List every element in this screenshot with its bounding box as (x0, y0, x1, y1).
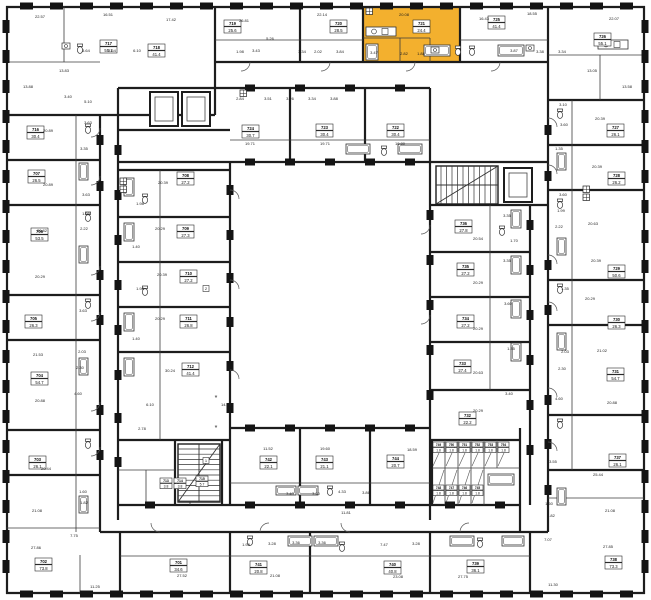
room-area-label: 3.26 (286, 96, 295, 101)
room-area-label: 3.63 (82, 192, 91, 197)
room-area-label: 19.71 (245, 141, 256, 146)
svg-text:20.8: 20.8 (254, 569, 263, 574)
svg-text:54.7: 54.7 (35, 380, 44, 385)
room-area-label: 20.39 (592, 164, 603, 169)
room-area-label: 6.10 (146, 402, 155, 407)
room-area-label: 1.60 (545, 501, 554, 506)
svg-text:1.8: 1.8 (449, 448, 454, 452)
svg-text:750: 750 (449, 443, 455, 447)
room-area-label: 3.84 (336, 49, 345, 54)
room-area-label: 4.60 (74, 391, 83, 396)
room-area-label: 3.86 (362, 490, 371, 495)
svg-text:20.7: 20.7 (391, 463, 400, 468)
svg-text:27.4: 27.4 (458, 368, 467, 373)
room-area-label: 20.63 (588, 221, 599, 226)
room-area-label: 7.75 (70, 533, 79, 538)
svg-text:746: 746 (462, 486, 468, 490)
svg-text:734: 734 (462, 316, 470, 321)
room-area-label: 23.08 (393, 574, 404, 579)
svg-text:53.5: 53.5 (35, 236, 44, 241)
unit-label-730[interactable]: 73026.3 (608, 316, 625, 329)
svg-text:704: 704 (36, 373, 44, 378)
room-area-label: 2.02 (314, 49, 323, 54)
storage-unit-label-748[interactable]: 7481.8 (433, 485, 444, 496)
svg-text:3.8: 3.8 (164, 484, 169, 488)
room-area-label: 3.60 (504, 301, 513, 306)
room-area-label: 3.63 (84, 120, 93, 125)
svg-text:754: 754 (501, 443, 507, 447)
svg-text:41.4: 41.4 (492, 24, 501, 29)
unit-label-723[interactable]: 72330.4 (316, 124, 333, 137)
svg-text:26.1: 26.1 (611, 132, 620, 137)
room-area-label: 3.35 (80, 146, 89, 151)
room-area-label: 20.29 (585, 296, 596, 301)
svg-text:718: 718 (153, 45, 161, 50)
svg-text:1.8: 1.8 (475, 491, 480, 495)
svg-text:725: 725 (493, 17, 501, 22)
room-area-label: 6.10 (133, 48, 142, 53)
room-area-label: 5.26 (266, 36, 275, 41)
room-area-label: 2.22 (555, 224, 564, 229)
svg-text:708: 708 (182, 173, 190, 178)
room-area-label: 20.89 (43, 182, 54, 187)
unit-label-716[interactable]: 71630.4 (27, 126, 44, 139)
room-area-label: 20.39 (158, 180, 169, 185)
unit-label-715[interactable]: 7155.7 (196, 476, 208, 487)
unit-label-718[interactable]: 71841.4 (148, 44, 165, 57)
room-area-label: 17.42 (166, 17, 177, 22)
svg-text:27.3: 27.3 (181, 233, 190, 238)
svg-text:27.2: 27.2 (461, 271, 470, 276)
unit-label-712[interactable]: 71241.4 (182, 363, 199, 376)
room-area-label: 26.81 (239, 18, 250, 23)
room-area-label: 20.29 (155, 226, 166, 231)
svg-text:702: 702 (40, 559, 48, 564)
room-area-label: 2.03 (561, 349, 570, 354)
unit-label-733[interactable]: 73327.4 (454, 360, 471, 373)
room-area-label: 16.51 (103, 12, 114, 17)
svg-text:741: 741 (255, 562, 263, 567)
room-area-label: 1.40 (132, 336, 141, 341)
unit-label-737[interactable]: 73726.1 (609, 454, 626, 467)
svg-text:738: 738 (610, 557, 618, 562)
svg-text:3.8: 3.8 (178, 484, 183, 488)
unit-label-714[interactable]: 7143.8 (174, 478, 186, 489)
svg-text:1.8: 1.8 (501, 448, 506, 452)
svg-text:739: 739 (472, 561, 480, 566)
svg-text:1.8: 1.8 (449, 491, 454, 495)
room-area-label: 3.43 (252, 48, 261, 53)
storage-unit-label-745[interactable]: 7451.8 (472, 485, 483, 496)
svg-text:712: 712 (187, 364, 195, 369)
room-area-label: 20.29 (473, 408, 484, 413)
svg-text:744: 744 (392, 456, 400, 461)
room-area-label: 3.34 (298, 49, 307, 54)
room-area-label: 3.34 (558, 49, 567, 54)
unit-label-704[interactable]: 70454.7 (31, 372, 48, 385)
room-area-label: 27.86 (31, 545, 42, 550)
unit-label-702[interactable]: 70273.8 (35, 558, 52, 571)
svg-text:752: 752 (475, 443, 481, 447)
unit-label-727[interactable]: 72726.1 (607, 124, 624, 137)
unit-label-732[interactable]: 73222.2 (459, 412, 476, 425)
unit-label-708[interactable]: 70827.2 (177, 172, 194, 185)
svg-text:709: 709 (182, 226, 190, 231)
room-area-label: 2.03 (78, 349, 87, 354)
room-area-label: 1.82 (547, 513, 556, 518)
svg-text:26.5: 26.5 (32, 178, 41, 183)
svg-text:740: 740 (389, 562, 397, 567)
room-area-label: 3.38 (536, 49, 545, 54)
svg-text:735: 735 (462, 264, 470, 269)
svg-text:720: 720 (335, 21, 343, 26)
svg-text:748: 748 (436, 486, 442, 490)
room-area-label: 2.82 (400, 51, 409, 56)
unit-label-728[interactable]: 72826.2 (608, 172, 625, 185)
svg-text:28.5: 28.5 (334, 28, 343, 33)
room-area-label: 1.98 (242, 542, 251, 547)
svg-text:30.4: 30.4 (31, 134, 40, 139)
svg-text:36.1: 36.1 (471, 568, 480, 573)
room-area-label: 1.98 (236, 49, 245, 54)
storage-unit-label-747[interactable]: 7471.8 (446, 485, 457, 496)
room-area-label: 4.33 (338, 489, 347, 494)
svg-text:22.1: 22.1 (264, 464, 273, 469)
svg-text:724: 724 (247, 126, 255, 131)
svg-text:722: 722 (392, 125, 400, 130)
svg-text:27.8: 27.8 (459, 228, 468, 233)
svg-text:703: 703 (34, 457, 42, 462)
svg-text:743: 743 (321, 457, 329, 462)
room-area-label: 2.22 (80, 226, 89, 231)
room-area-label: 1.98 (136, 201, 145, 206)
room-area-label: 20.82 (37, 228, 48, 233)
room-area-label: 3.35 (503, 213, 512, 218)
room-area-label: 7.07 (544, 537, 553, 542)
unit-label-729[interactable]: 72950.6 (608, 265, 625, 278)
svg-text:707: 707 (33, 171, 41, 176)
room-area-label: 3.10 (559, 102, 568, 107)
svg-text:25.6: 25.6 (228, 28, 237, 33)
room-area-label: 4.60 (555, 396, 564, 401)
room-area-label: 1.35 (555, 146, 564, 151)
svg-text:26.3: 26.3 (29, 323, 38, 328)
room-area-label: 11.81 (341, 510, 351, 515)
room-area-label: 2.84 (236, 96, 245, 101)
unit-label-738[interactable]: 73873.3 (605, 556, 622, 569)
room-area-label: 1.40 (132, 244, 141, 249)
floor-plan: 21**71755.171841.471925.672028.572124.47… (0, 0, 651, 600)
room-area-label: 3.64 (108, 48, 117, 53)
room-area-label: 22.14 (317, 12, 328, 17)
svg-text:41.4: 41.4 (152, 52, 161, 57)
svg-text:73.3: 73.3 (609, 564, 618, 569)
room-area-label: 3.40 (64, 94, 73, 99)
svg-text:710: 710 (185, 271, 193, 276)
room-area-label: 1.88 (417, 51, 426, 56)
room-area-label: 13.83 (59, 68, 70, 73)
room-area-label: 3.47 (370, 50, 379, 55)
room-area-label: 3.40 (312, 491, 321, 496)
storage-unit-label-749[interactable]: 7491.8 (433, 442, 444, 453)
floor-plan-container: 21**71755.171841.471925.672028.572124.47… (0, 0, 651, 600)
svg-text:713: 713 (163, 479, 169, 483)
svg-text:737: 737 (614, 455, 622, 460)
room-area-label: 3.40 (286, 491, 295, 496)
svg-text:50.6: 50.6 (612, 273, 621, 278)
storage-unit-label-751[interactable]: 7511.8 (459, 442, 470, 453)
room-area-label: 19.71 (320, 141, 331, 146)
svg-text:24.4: 24.4 (417, 28, 426, 33)
unit-label-735[interactable]: 73527.2 (457, 263, 474, 276)
svg-text:41.4: 41.4 (186, 371, 195, 376)
room-area-label: 21.53 (33, 352, 44, 357)
svg-text:1.8: 1.8 (462, 491, 467, 495)
svg-text:26.2: 26.2 (612, 180, 621, 185)
room-area-label: 19.60 (320, 446, 331, 451)
svg-text:711: 711 (185, 316, 192, 321)
svg-text:719: 719 (229, 21, 237, 26)
room-area-label: 20.08 (399, 12, 410, 17)
room-area-label: 3.87 (510, 48, 519, 53)
room-area-label: 20.29 (35, 274, 46, 279)
unit-label-725[interactable]: 72541.4 (488, 16, 505, 29)
storage-unit-label-750[interactable]: 7501.8 (446, 442, 457, 453)
svg-text:1.8: 1.8 (462, 448, 467, 452)
room-area-label: 1.98 (136, 286, 145, 291)
svg-text:714: 714 (177, 479, 183, 483)
room-area-label: 18.59 (407, 447, 418, 452)
room-area-label: 3.60 (559, 192, 568, 197)
room-area-label: 5.10 (84, 99, 93, 104)
unit-label-705[interactable]: 70526.3 (25, 315, 42, 328)
room-area-label: 20.63 (473, 370, 484, 375)
room-area-label: 20.89 (43, 128, 54, 133)
unit-label-721[interactable]: 72124.4 (413, 20, 430, 33)
unit-label-720[interactable]: 72028.5 (330, 20, 347, 33)
room-area-label: 20.39 (591, 258, 602, 263)
room-area-label: 22.07 (609, 16, 620, 21)
svg-text:736: 736 (460, 221, 468, 226)
room-area-label: 3.64 (82, 48, 91, 53)
room-area-label: 20.29 (155, 316, 166, 321)
room-area-label: 7.47 (380, 542, 389, 547)
room-area-label: 20.29 (473, 280, 484, 285)
svg-text:705: 705 (30, 316, 38, 321)
room-area-label: 20.44 (41, 466, 52, 471)
svg-text:21.1: 21.1 (320, 464, 329, 469)
unit-label-742[interactable]: 74222.1 (260, 456, 277, 469)
svg-text:742: 742 (265, 457, 273, 462)
svg-text:30.7: 30.7 (246, 133, 255, 138)
room-area-label: 1.70 (510, 238, 519, 243)
room-area-label: 27.52 (177, 573, 188, 578)
room-area-label: 3.88 (330, 96, 339, 101)
svg-text:751: 751 (462, 443, 468, 447)
svg-text:27.2: 27.2 (181, 180, 190, 185)
svg-text:55.1: 55.1 (598, 41, 607, 46)
room-area-label: 20.39 (595, 116, 606, 121)
room-area-label: 3.35 (503, 258, 512, 263)
room-area-label: 3.36 (318, 540, 327, 545)
room-area-label: 2.30 (76, 365, 85, 370)
room-area-label: 3.60 (560, 122, 569, 127)
unit-label-736[interactable]: 73627.8 (455, 220, 472, 233)
room-area-label: 22.57 (35, 14, 46, 19)
room-area-label: 20.88 (607, 400, 618, 405)
svg-text:26.8: 26.8 (184, 323, 193, 328)
svg-text:715: 715 (199, 477, 205, 481)
room-area-label: 18.55 (527, 11, 538, 16)
svg-text:727: 727 (612, 125, 620, 130)
unit-label-710[interactable]: 71027.2 (180, 270, 197, 283)
svg-text:54.7: 54.7 (611, 376, 620, 381)
unit-label-740[interactable]: 74040.8 (384, 561, 401, 574)
room-area-label: 1.99 (557, 208, 566, 213)
room-area-label: 20.39 (157, 272, 168, 277)
svg-text:716: 716 (32, 127, 40, 132)
room-area-label: 1.35 (507, 346, 516, 351)
room-area-label: 2.30 (558, 366, 567, 371)
svg-text:34.6: 34.6 (174, 567, 183, 572)
room-area-label: 3.51 (264, 96, 273, 101)
svg-text:1.8: 1.8 (436, 491, 441, 495)
room-area-label: 20.54 (473, 236, 484, 241)
room-area-label: 1.99 (82, 211, 91, 216)
room-area-label: 30.24 (165, 368, 176, 373)
unit-label-726[interactable]: 72655.1 (594, 33, 611, 46)
room-area-label: 11.30 (548, 582, 558, 587)
svg-text:717: 717 (105, 41, 113, 46)
room-area-label: 27.85 (603, 544, 614, 549)
unit-label-724[interactable]: 72430.7 (242, 125, 259, 138)
room-area-label: 1.60 (79, 489, 88, 494)
svg-text:27.2: 27.2 (461, 323, 470, 328)
unit-label-743[interactable]: 74321.1 (316, 456, 333, 469)
unit-label-722[interactable]: 72230.4 (387, 124, 404, 137)
svg-text:26.1: 26.1 (613, 462, 622, 467)
room-area-label: 2.78 (138, 426, 147, 431)
room-area-label: 3.28 (412, 541, 421, 546)
unit-label-731[interactable]: 73154.7 (607, 368, 624, 381)
svg-text:1.8: 1.8 (436, 448, 441, 452)
svg-text:749: 749 (436, 443, 442, 447)
storage-unit-label-753[interactable]: 7531.8 (485, 442, 496, 453)
unit-label-711[interactable]: 71126.8 (180, 315, 197, 328)
unit-label-739[interactable]: 73936.1 (467, 560, 484, 573)
room-area-label: 21.08 (32, 508, 43, 513)
svg-text:1.8: 1.8 (475, 448, 480, 452)
svg-text:5.7: 5.7 (200, 482, 205, 486)
svg-text:30.4: 30.4 (320, 132, 329, 137)
svg-text:747: 747 (449, 486, 455, 490)
unit-label-701[interactable]: 70134.6 (170, 559, 187, 572)
unit-label-713[interactable]: 7133.8 (160, 478, 172, 489)
svg-text:728: 728 (613, 173, 621, 178)
svg-text:726: 726 (599, 34, 607, 39)
svg-text:753: 753 (488, 443, 494, 447)
room-area-label: 16.43 (479, 16, 490, 21)
room-area-label: 3.40 (505, 391, 514, 396)
room-area-label: 20.88 (35, 398, 46, 403)
svg-text:732: 732 (464, 413, 472, 418)
svg-text:30.4: 30.4 (391, 132, 400, 137)
svg-text:27.2: 27.2 (184, 278, 193, 283)
svg-text:721: 721 (418, 21, 426, 26)
svg-text:729: 729 (613, 266, 621, 271)
room-area-label: 27.75 (458, 574, 469, 579)
svg-text:26.3: 26.3 (612, 324, 621, 329)
storage-unit-label-752[interactable]: 7521.8 (472, 442, 483, 453)
svg-text:*: * (215, 395, 218, 402)
room-area-label: 11.25 (90, 584, 100, 589)
room-area-label: 14.24 (221, 402, 232, 407)
unit-label-734[interactable]: 73427.2 (457, 315, 474, 328)
svg-text:731: 731 (612, 369, 620, 374)
room-area-label: 3.55 (549, 459, 558, 464)
room-area-label: 25.44 (593, 472, 604, 477)
svg-text:733: 733 (459, 361, 467, 366)
room-area-label: 20.29 (473, 326, 484, 331)
svg-text:1.8: 1.8 (488, 448, 493, 452)
svg-text:73.8: 73.8 (39, 566, 48, 571)
storage-unit-label-746[interactable]: 7461.8 (459, 485, 470, 496)
room-area-label: 1.35 (561, 286, 570, 291)
room-area-label: 3.63 (79, 308, 88, 313)
room-area-label: 3.36 (292, 540, 301, 545)
room-area-label: 1.82 (80, 500, 89, 505)
svg-text:701: 701 (175, 560, 183, 565)
room-area-label: 3.28 (268, 541, 277, 546)
svg-text:723: 723 (321, 125, 329, 130)
room-area-label: 3.34 (308, 96, 317, 101)
room-area-label: 13.88 (23, 84, 34, 89)
unit-label-744[interactable]: 74420.7 (387, 455, 404, 468)
unit-label-709[interactable]: 70927.3 (177, 225, 194, 238)
room-area-label: 19.80 (395, 141, 406, 146)
svg-text:745: 745 (475, 486, 481, 490)
room-area-label: 21.02 (597, 348, 608, 353)
room-area-label: 13.05 (587, 68, 598, 73)
room-area-label: 21.08 (605, 508, 616, 513)
svg-text:730: 730 (613, 317, 621, 322)
svg-text:*: * (215, 425, 218, 432)
room-area-label: 11.52 (263, 446, 273, 451)
room-area-label: 13.58 (622, 84, 633, 89)
room-area-label: 21.08 (270, 573, 281, 578)
storage-unit-label-754[interactable]: 7541.8 (498, 442, 509, 453)
unit-label-741[interactable]: 74120.8 (250, 561, 267, 574)
svg-text:22.2: 22.2 (463, 420, 472, 425)
